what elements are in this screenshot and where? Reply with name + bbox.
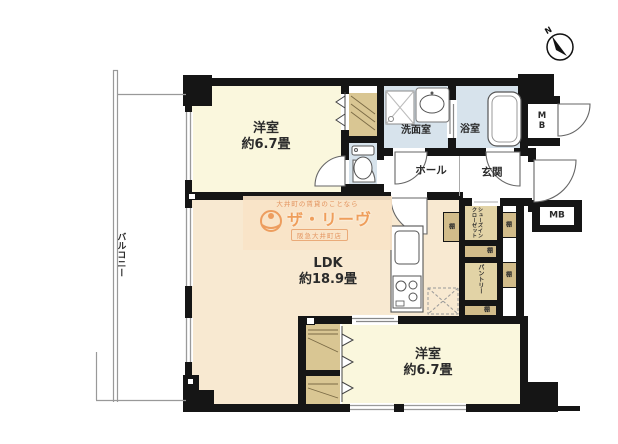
shelf-label: 棚 [484,306,490,314]
floor-plan-canvas: 洋室 約6.7畳 LDK 約18.9畳 洋室 約6.7畳 洗面室 浴室 ホール … [0,0,618,444]
shelf-label: 棚 [487,247,493,255]
watermark: 大井町の賃貸のことなら ザ・リーヴ 阪急大井町店 [243,196,392,250]
door-meter-box [558,104,590,136]
closet-hanger-top [351,96,375,130]
room-size: 約6.7畳 [403,363,452,378]
pantry-label: パントリー [476,264,483,302]
leave-logo-icon [257,207,285,235]
room-size: 約18.9畳 [299,272,357,287]
floor-hatch-icon [428,288,458,314]
shelf-label: 棚 [506,221,512,229]
room-name: LDK [313,256,342,271]
shelf-label: 棚 [506,271,512,279]
bathroom-label: 浴室 [460,124,480,137]
room-name: 洋室 [415,347,441,362]
bedroom-bottom-label: 洋室 約6.7畳 [403,347,452,380]
wash-basin-icon [416,88,449,122]
door-bedroom-top [315,156,345,186]
closet-hanger-bottom [308,330,338,398]
hall-label: ホール [415,164,447,177]
balcony-label: バルコニー [115,232,125,277]
closet-door-top [336,92,345,130]
door-front-entrance [534,160,576,202]
washroom-label: 洗面室 [401,125,431,138]
meter-box-side-label: MB [549,210,565,221]
toilet-icon [352,146,374,179]
watermark-brand: ザ・リーヴ [287,206,372,230]
room-name: 洋室 [253,121,279,136]
ldk-label: LDK 約18.9畳 [299,256,357,289]
compass-icon [547,34,573,60]
kitchen-counter-icon [391,226,423,312]
shelf-label: 棚 [449,223,455,231]
washer-pan-icon [386,91,414,124]
balcony-rail-lines [96,70,186,402]
bathtub-icon [488,92,521,146]
bedroom-top-label: 洋室 約6.7畳 [241,121,290,154]
shoes-in-closet-label: シューズインクローゼット [470,207,482,241]
closet-door-bottom [342,326,353,402]
meter-box-top-label: MB [536,112,548,132]
sliding-door-ldk-bedroom [352,315,398,325]
watermark-store: 阪急大井町店 [291,229,348,241]
room-size: 約6.7畳 [241,137,290,152]
entrance-label: 玄関 [482,166,503,179]
